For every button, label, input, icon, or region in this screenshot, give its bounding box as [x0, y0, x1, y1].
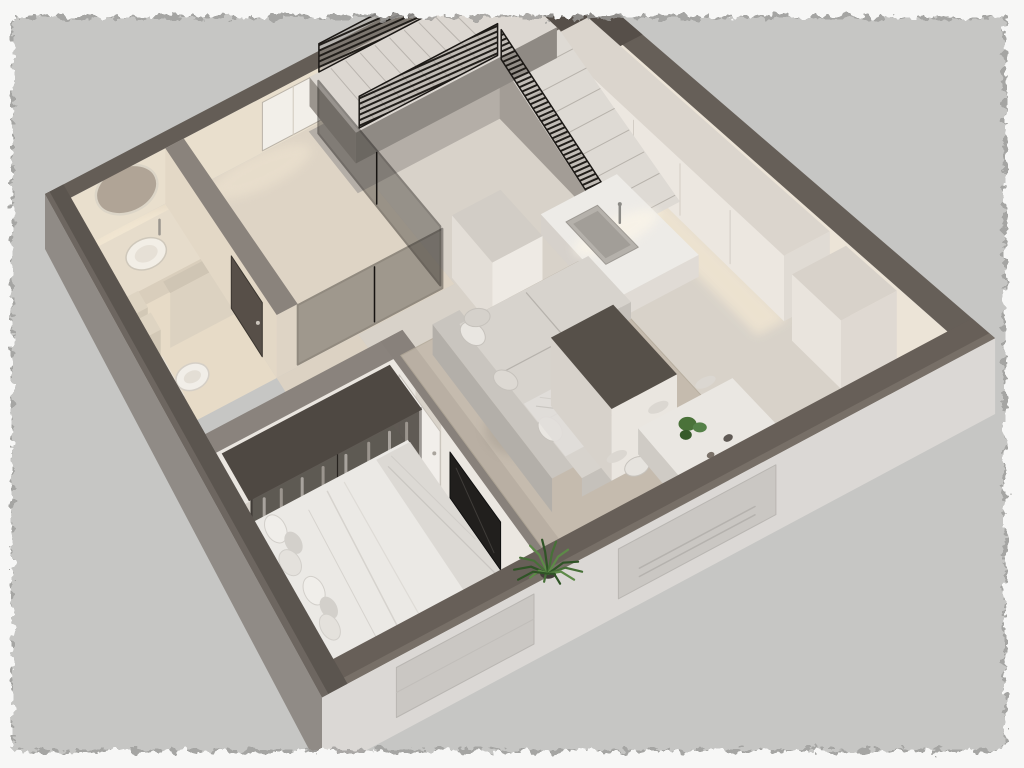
screenshot-root: 3D isometric floor plan render of a smal… — [0, 0, 1024, 768]
table-plant — [693, 422, 707, 432]
frame-left — [0, 0, 12, 768]
frame-top — [0, 0, 1024, 16]
floor-plan-render — [0, 0, 1024, 768]
kitchen-faucet-head — [618, 202, 622, 206]
frame-right — [1006, 0, 1024, 768]
table-plant — [680, 430, 692, 440]
frame-bottom — [0, 752, 1024, 768]
bathroom-door-handle — [256, 321, 260, 325]
bedroom-door-handle — [432, 451, 436, 455]
